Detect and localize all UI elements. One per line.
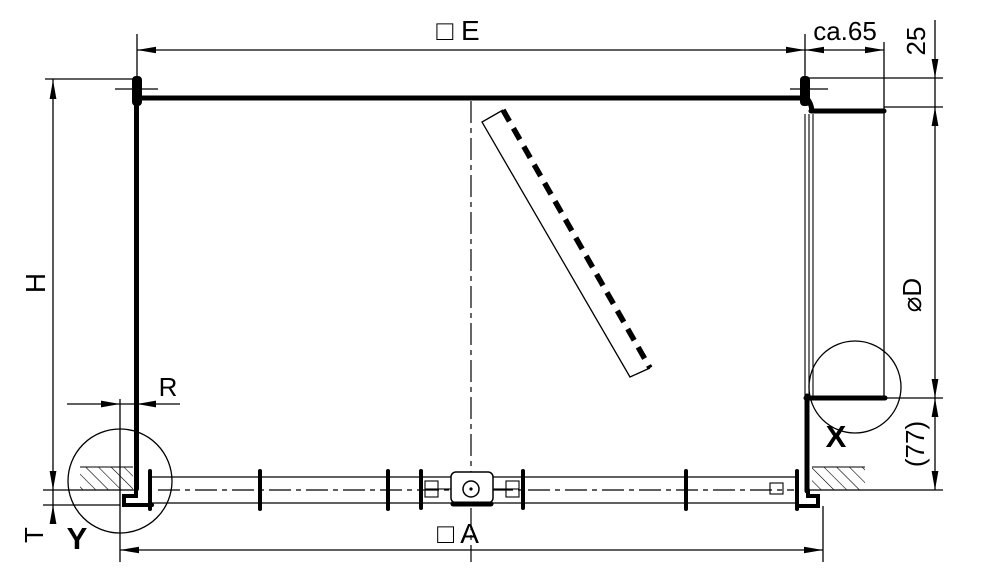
label-dim-e: □ E <box>436 15 479 46</box>
arrow-ca65-right <box>865 47 884 54</box>
arrow-e-left <box>137 47 156 54</box>
arrow-h-bottom <box>50 471 57 490</box>
arrow-25-top <box>932 59 939 78</box>
hatch-area-left <box>80 467 133 490</box>
label-dim-t: T <box>19 527 49 543</box>
label-dim-77: (77) <box>900 421 930 467</box>
label-dim-25: 25 <box>901 27 931 56</box>
rail-end-block <box>770 483 783 494</box>
arrow-ca65-left <box>805 47 824 54</box>
technical-drawing-canvas: □ E ca.65 25 H R ⌀D (77) T □ A X Y <box>0 0 1000 573</box>
arrow-h-top <box>50 80 57 99</box>
open-lid <box>482 110 650 377</box>
arrow-e-right <box>786 47 805 54</box>
arrow-d-top <box>932 107 939 126</box>
arrow-r-left <box>101 401 120 408</box>
ground-hatch-right <box>812 467 865 490</box>
label-detail-y: Y <box>67 521 88 556</box>
label-dim-d: ⌀D <box>897 278 927 312</box>
label-dim-h: H <box>20 273 51 293</box>
label-dim-r: R <box>159 372 178 402</box>
open-lid-dashed-line <box>503 110 650 368</box>
drawing-svg: □ E ca.65 25 H R ⌀D (77) T □ A X Y <box>0 0 1000 573</box>
bracket-hole-center <box>469 487 472 490</box>
detail-circle-x <box>809 341 901 433</box>
arrow-r-right <box>137 401 156 408</box>
open-lid-outline <box>482 110 650 377</box>
label-detail-x: X <box>826 419 847 454</box>
arrow-d-bottom <box>932 379 939 398</box>
arrow-a-left <box>120 547 139 554</box>
arrow-a-right <box>804 547 823 554</box>
arrow-77-top <box>932 398 939 417</box>
arrow-t-bottom <box>50 505 57 524</box>
ground-hatch-left <box>80 467 133 490</box>
arrow-77-bottom <box>932 471 939 490</box>
label-dim-ca65: ca.65 <box>813 16 877 46</box>
label-dim-a: □ A <box>437 518 479 549</box>
enclosure-structure <box>124 76 885 506</box>
right-foot-profile <box>797 490 818 506</box>
hatch-area-right <box>812 467 865 490</box>
